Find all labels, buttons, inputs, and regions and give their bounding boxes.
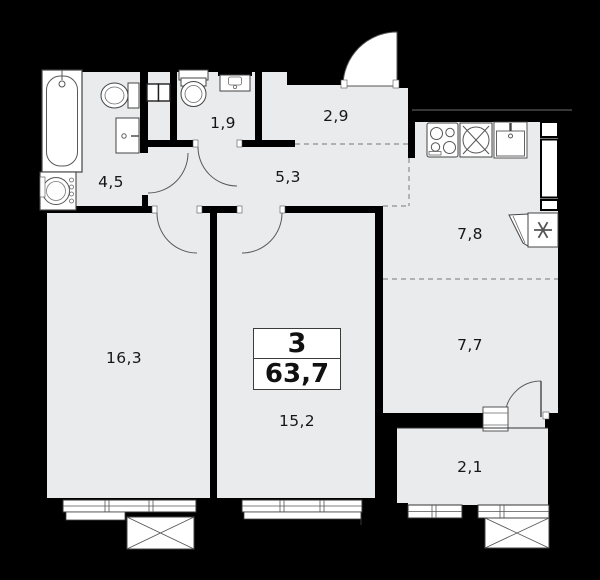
washing-machine: [40, 172, 76, 210]
wc-sink: [220, 75, 250, 91]
living-room-window: [242, 500, 362, 525]
floor-plan-drawing: [0, 0, 600, 580]
wc-toilet: [179, 70, 208, 107]
unit-rooms-count: 3: [254, 329, 340, 358]
balcony-glazing: [408, 505, 549, 518]
bedroom-ac-basket: [127, 517, 194, 549]
kitchen-sink-crossed: [460, 123, 492, 157]
entry-door: [343, 32, 397, 86]
hall-area-label: 2,9: [323, 107, 349, 125]
bathroom-area-label: 4,5: [98, 173, 124, 191]
balcony-area-label: 2,1: [457, 458, 483, 476]
corridor-area-label: 5,3: [275, 168, 301, 186]
balcony-window-unit: [483, 407, 508, 431]
bedroom-area-label: 16,3: [106, 349, 142, 367]
kitchen-zone-area-label: 7,7: [457, 336, 483, 354]
living-room-area-label: 15,2: [279, 412, 315, 430]
unit-total-area: 63,7: [254, 358, 340, 389]
unit-info-box: 3 63,7: [253, 328, 341, 390]
wc-area-label: 1,9: [210, 114, 236, 132]
bathroom-toilet: [101, 83, 139, 108]
kitchen-sink-basin: [494, 122, 527, 158]
balcony-ac-basket: [485, 518, 549, 548]
bathtub: [42, 70, 82, 172]
kitchen-area-label: 7,8: [457, 225, 483, 243]
duct-shaft: [147, 84, 170, 101]
vent-shaft-boxes: [541, 122, 558, 210]
bathroom-sink-cabinet: [116, 118, 139, 153]
floor-plan: 4,5 1,9 2,9 5,3 7,8 7,7 16,3 15,2 2,1 3 …: [0, 0, 600, 580]
stove: [427, 123, 458, 157]
